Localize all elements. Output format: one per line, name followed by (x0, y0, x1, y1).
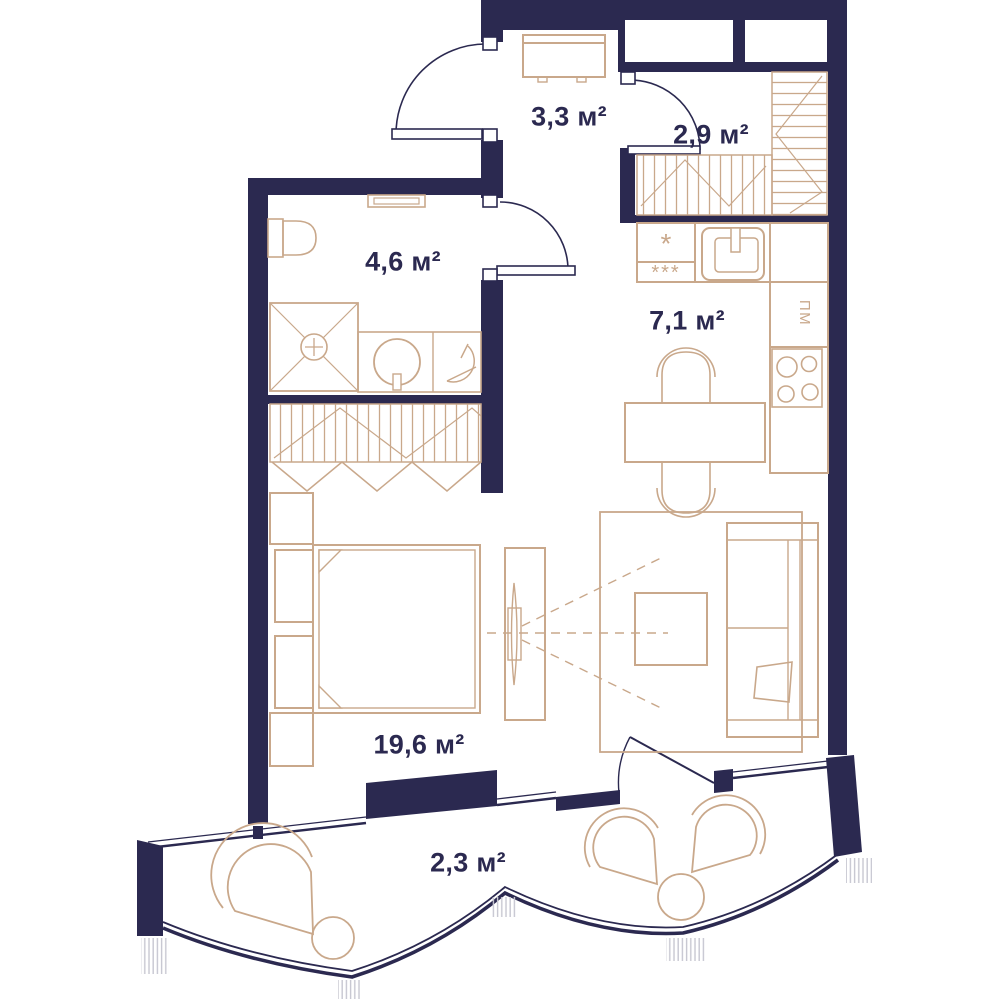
walls (137, 0, 862, 936)
wall-right (828, 0, 847, 755)
bathroom-shelf-inner (374, 198, 419, 204)
tuft (846, 858, 872, 883)
tv-screen (512, 583, 518, 685)
window-mullion (253, 826, 263, 839)
bed-mattress (319, 550, 475, 708)
sofa (727, 523, 818, 737)
entry-door-jamb (483, 37, 497, 50)
stove-burner (802, 384, 818, 400)
balcony-door-leaf (630, 737, 714, 783)
tv-base (508, 608, 521, 660)
sofa-pillow (754, 662, 792, 702)
bathroom-door-jamb (483, 269, 497, 281)
dining-chair (662, 462, 710, 513)
closet-rail (270, 404, 481, 462)
wardrobe-column (270, 713, 313, 766)
balcony-pillar-left (137, 858, 163, 936)
dressing-door-jamb (621, 72, 635, 84)
bed-pillow-fold (319, 550, 341, 572)
balcony-armchair (692, 805, 757, 872)
window-pier-left (366, 770, 497, 819)
rug (600, 512, 802, 752)
closet (270, 404, 481, 491)
bathroom-door-jamb (483, 195, 497, 207)
bathroom-door-leaf (497, 266, 575, 275)
room-label-dressing-room: 2,9 м² (673, 120, 749, 151)
room-label-kitchen: 7,1 м² (649, 306, 725, 337)
balcony-door-jamb (714, 769, 733, 793)
room-label-hallway: 3,3 м² (531, 102, 607, 133)
room-label-bathroom: 4,6 м² (365, 247, 441, 278)
washbasin-faucet (393, 374, 401, 390)
bath-fixture-icon (461, 344, 468, 358)
wall-niches (625, 20, 827, 62)
dining-table (625, 403, 765, 462)
wall-bathroom-bottom (268, 395, 503, 404)
room-label-living-room: 19,6 м² (373, 730, 464, 761)
bath-fixture-icon (447, 367, 476, 381)
stove-burner (778, 386, 794, 402)
floor-plan: * *** ПМ (0, 0, 1000, 1000)
bed-pillow-fold (319, 686, 341, 708)
tuft (141, 938, 169, 974)
stove-burner (802, 357, 817, 372)
balcony-armchair (228, 844, 313, 934)
wardrobe-column (270, 493, 313, 544)
dining-chair (662, 352, 710, 403)
wall-dressing-lower (620, 148, 635, 223)
balcony-side-table (312, 917, 354, 959)
tuft (492, 897, 516, 917)
tv-viewing-lines (487, 556, 668, 710)
hatch-tufts (141, 858, 872, 999)
room-label-balcony: 2,3 м² (430, 848, 506, 879)
wall-bathroom-right (481, 280, 503, 493)
bathroom-fixtures (268, 195, 481, 392)
balcony-side-table (658, 874, 704, 920)
closet-front-chevrons (272, 462, 481, 491)
tuft (338, 980, 362, 999)
bed (313, 545, 480, 713)
nightstand (275, 550, 313, 622)
toilet-cistern (268, 219, 283, 257)
balcony-door-swing (618, 737, 630, 793)
freezer-stars-label: *** (651, 262, 680, 284)
balcony-armchair (593, 817, 657, 884)
balcony-pillar-left-cap (137, 840, 163, 858)
coffee-table (635, 593, 707, 665)
nightstand (275, 636, 313, 708)
hallway-cabinet (523, 35, 605, 77)
tuft (666, 938, 706, 961)
entry-door-leaf (392, 129, 482, 139)
kitchen-faucet (731, 228, 740, 252)
balcony-pillar-right (826, 755, 862, 857)
bathroom-shelf (368, 195, 425, 207)
niche-left (625, 20, 733, 62)
hallway-furniture (523, 35, 605, 82)
wall-dressing-kitchen (620, 215, 828, 223)
wall-west (248, 178, 268, 824)
wall-bathroom-top (248, 178, 503, 195)
bathroom-door-swing (500, 202, 568, 270)
fridge-star-label: * (661, 228, 672, 259)
dishwasher-label: ПМ (796, 300, 813, 326)
bath-fixture-icon (447, 346, 474, 382)
wardrobe-rail-bottom (637, 155, 772, 215)
stove-burner (777, 357, 797, 377)
toilet-bowl (283, 221, 316, 255)
window-pier-mid (556, 790, 620, 811)
niche-right (745, 20, 827, 62)
entry-door-swing (396, 44, 486, 134)
entry-door-jamb (483, 129, 497, 142)
living-room-furniture (270, 493, 818, 766)
